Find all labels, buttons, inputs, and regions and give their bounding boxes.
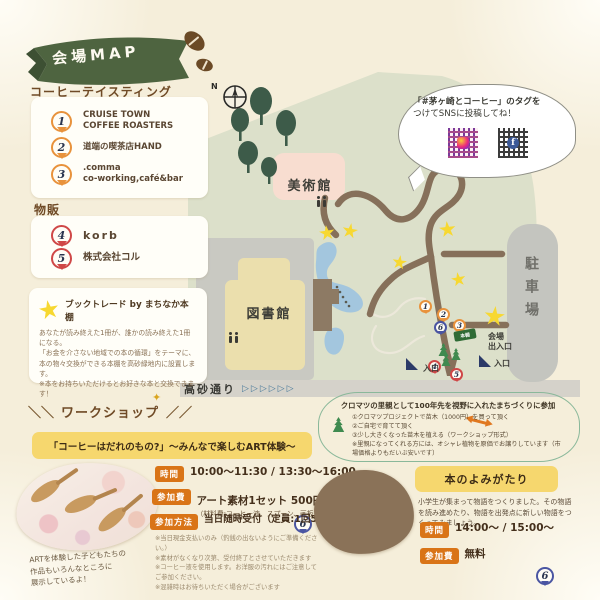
reading-time-row: 時間 14:00〜 / 15:00〜 <box>420 522 554 538</box>
list-item: 2 道端の喫茶店HAND <box>51 137 200 158</box>
fee-tag: 参加費 <box>152 489 191 505</box>
instagram-qr-code <box>446 126 480 160</box>
reading-banner: 本のよみがたり <box>415 466 558 492</box>
time-tag: 時間 <box>420 522 449 538</box>
deco-slash-right: ／／ <box>166 402 192 421</box>
workshop-heading-row: ＼＼ ワークショップ ／／ <box>28 402 192 421</box>
flyer-canvas: 美術館 図書館 駐車場 N 高砂通り ▷▷▷▷▷▷ 1 2 3 4 5 6 本棚… <box>0 0 600 600</box>
map-pin-2: 2 <box>437 308 450 321</box>
street-direction-arrows: ▷▷▷▷▷▷ <box>242 384 296 394</box>
book-trade-body: あなたが読み終えた1冊が、誰かの読み終えた1冊になる。 「お金を介さない地域での… <box>39 328 197 399</box>
kuromatsu-title: クロマツの里親として100年先を視野に入れたまちづくりに参加 <box>331 400 565 411</box>
parking-label: 駐車場 <box>521 256 541 325</box>
compass-north-label: N <box>211 82 218 91</box>
restroom-icon <box>229 332 238 343</box>
map-pin-5: 5 <box>450 368 463 381</box>
entrance-label: 入口 <box>494 358 510 369</box>
spoon-shape <box>63 491 99 516</box>
workshop-time-row: 時間 10:00〜11:30 / 13:30〜16:00 <box>155 466 356 482</box>
reading-title: 本のよみがたり <box>445 471 529 487</box>
sns-text-line1: 「#茅ヶ崎とコーヒー」のタグを <box>413 95 563 107</box>
coffee-tasting-card: 1 CRUISE TOWN COFFEE ROASTERS 2 道端の喫茶店HA… <box>31 97 208 198</box>
workshop-heading: ワークショップ <box>61 402 159 421</box>
kuromatsu-body: ①クロマツプロジェクトで苗木（1000円）を買って頂く ②ご自宅で育てて頂く ③… <box>352 414 565 459</box>
deco-slash-left: ＼＼ <box>28 402 54 421</box>
reading-fee-row: 参加費 無料 <box>420 548 486 564</box>
venue-gate-label: 会場 出入口 <box>488 332 512 352</box>
pin-badge-5: 5 <box>51 248 72 269</box>
map-pin-1: 1 <box>419 300 432 313</box>
fee-value: アート素材1セット 500円 <box>197 495 324 507</box>
fee-tag: 参加費 <box>420 548 459 564</box>
workshop-photo <box>12 457 161 556</box>
sns-speech-bubble: 「#茅ヶ崎とコーヒー」のタグを つけてSNSに投稿してね！ f <box>398 84 576 178</box>
sparkle-icon: ✦ <box>152 391 161 404</box>
workshop-banner: 「コーヒーはだれのもの?」〜みんなで楽しむART体験〜 <box>32 432 312 459</box>
workshop-banner-title: 「コーヒーはだれのもの?」〜みんなで楽しむART体験〜 <box>49 439 296 453</box>
book-trade-title: ブックトレード by まちなか本棚 <box>65 297 197 323</box>
facebook-icon: f <box>507 137 519 149</box>
pin-badge-2: 2 <box>51 137 72 158</box>
street-label-row: 高砂通り ▷▷▷▷▷▷ <box>184 381 296 397</box>
museum-label: 美術館 <box>275 175 345 194</box>
shop-name: 道端の喫茶店HAND <box>83 142 162 153</box>
time-value: 14:00〜 / 15:00〜 <box>455 522 554 535</box>
library-label: 図書館 <box>238 303 300 322</box>
star-icon <box>37 298 60 321</box>
facebook-qr-code: f <box>496 126 530 160</box>
spoon-shape <box>28 476 63 506</box>
list-item: 3 .comma co-working,café&bar <box>51 163 200 185</box>
reading-banner-pin-6: 6 <box>536 567 554 585</box>
workshop-notes: ※当日現金支払いのみ（釣銭の出ないようにご準備ください。） ※素材がなくなり次第… <box>155 534 321 593</box>
list-item: 5 株式会社コル <box>51 248 200 269</box>
shop-name: korb <box>83 229 119 243</box>
kuromatsu-panel: クロマツの里親として100年先を視野に入れたまちづくりに参加 ①クロマツプロジェ… <box>318 392 580 462</box>
method-tag: 参加方法 <box>150 514 198 530</box>
pin-badge-1: 1 <box>51 111 72 132</box>
entrance-marker <box>479 355 491 367</box>
goods-card: 4 korb 5 株式会社コル <box>31 216 208 278</box>
entrance-marker <box>406 358 418 370</box>
list-item: 4 korb <box>51 225 200 246</box>
pin-badge-4: 4 <box>51 225 72 246</box>
shop-name: .comma co-working,café&bar <box>83 163 183 185</box>
time-value: 10:00〜11:30 / 13:30〜16:00 <box>190 466 356 479</box>
shop-name: CRUISE TOWN COFFEE ROASTERS <box>83 110 173 132</box>
fee-value: 無料 <box>465 548 486 561</box>
reading-photo <box>313 468 416 555</box>
library-building <box>225 280 305 370</box>
compass-icon <box>224 86 246 108</box>
shop-name: 株式会社コル <box>83 252 140 264</box>
book-trade-card: ブックトレード by まちなか本棚 あなたが読み終えた1冊が、誰かの読み終えた1… <box>29 288 207 383</box>
entrance-label: 入口 <box>423 363 439 374</box>
sns-text-line2: つけてSNSに投稿してね！ <box>413 107 563 119</box>
map-pin-6: 6 <box>434 321 447 334</box>
restroom-icon <box>317 196 326 207</box>
list-item: 1 CRUISE TOWN COFFEE ROASTERS <box>51 110 200 132</box>
spoon-shape <box>95 503 129 535</box>
pine-tree-icon <box>331 417 346 432</box>
pin-badge-3: 3 <box>51 164 72 185</box>
workshop-photo-note: ARTを体験した子どもたちの 作品もいろんなところに 展示しているよ！ <box>29 548 128 590</box>
time-tag: 時間 <box>155 466 184 482</box>
